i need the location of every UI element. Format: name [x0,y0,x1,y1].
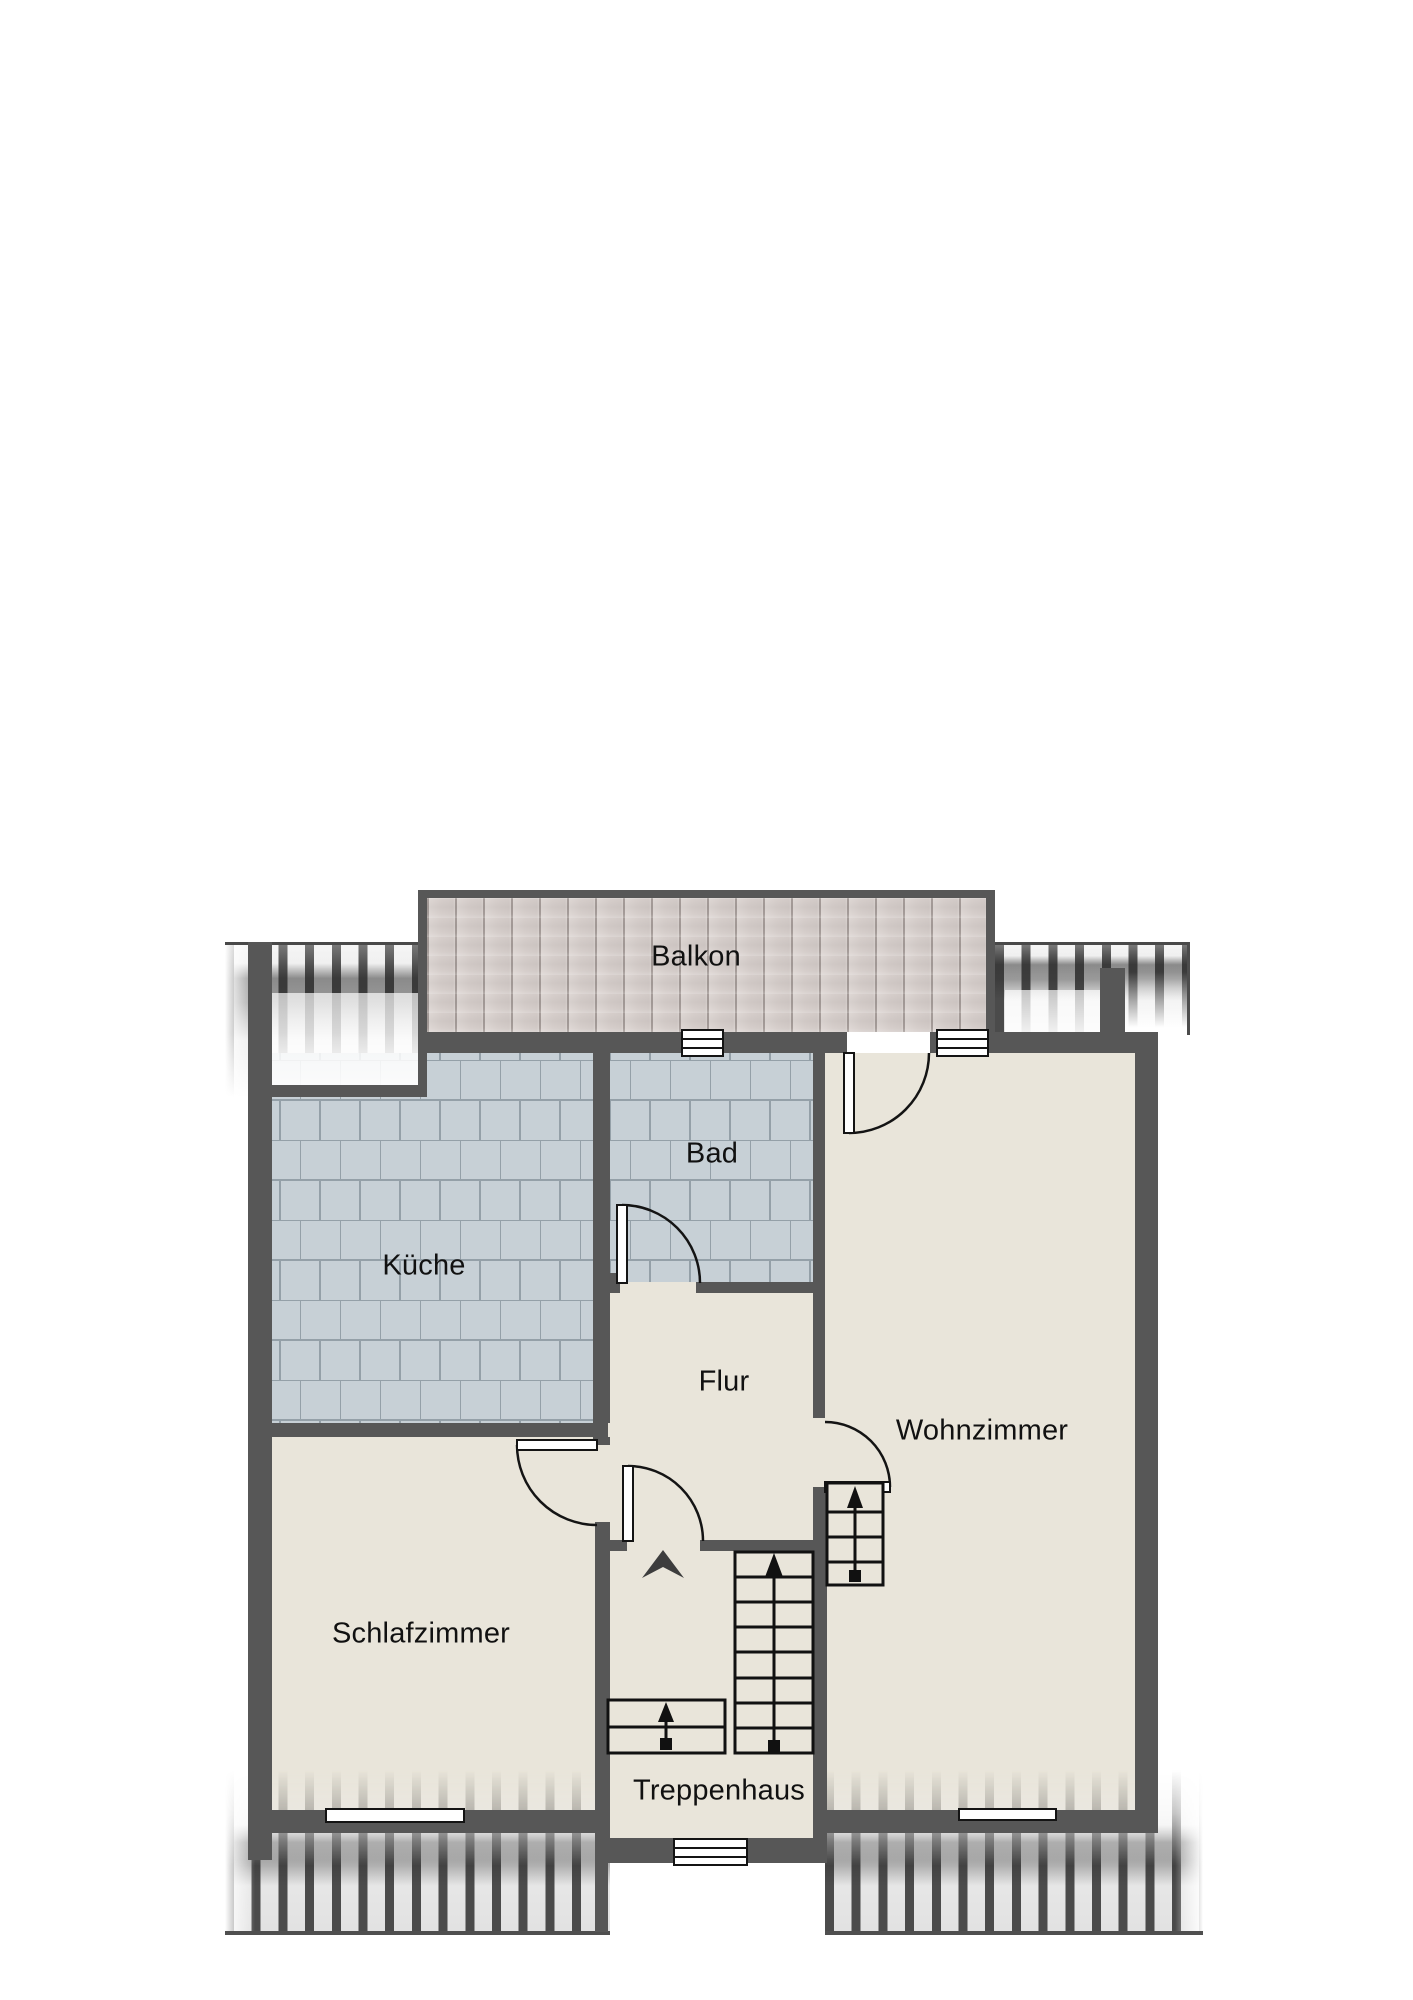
door-flur-schlafzimmer [517,1440,597,1525]
room-label-bad: Bad [686,1138,738,1171]
floor-plan: Balkon Küche Bad Flur Wohnzimmer Schlafz… [0,0,1413,2000]
stairs-treppenhaus-main [735,1552,813,1753]
room-label-kueche: Küche [382,1250,465,1283]
stairs-bottom-steps [608,1700,725,1753]
symbols-overlay [0,0,1413,2000]
room-label-flur: Flur [699,1366,750,1399]
door-balkon-wohnzimmer [844,1053,929,1133]
room-label-schlafzimmer: Schlafzimmer [332,1618,510,1651]
door-flur-treppenhaus [623,1466,703,1541]
door-flur-bad [617,1205,700,1283]
room-label-wohnzimmer: Wohnzimmer [896,1415,1068,1448]
room-label-treppenhaus: Treppenhaus [633,1775,805,1808]
entrance-arrow-icon [642,1550,684,1578]
stairs-upper-run [827,1483,883,1585]
room-label-balkon: Balkon [651,941,741,974]
